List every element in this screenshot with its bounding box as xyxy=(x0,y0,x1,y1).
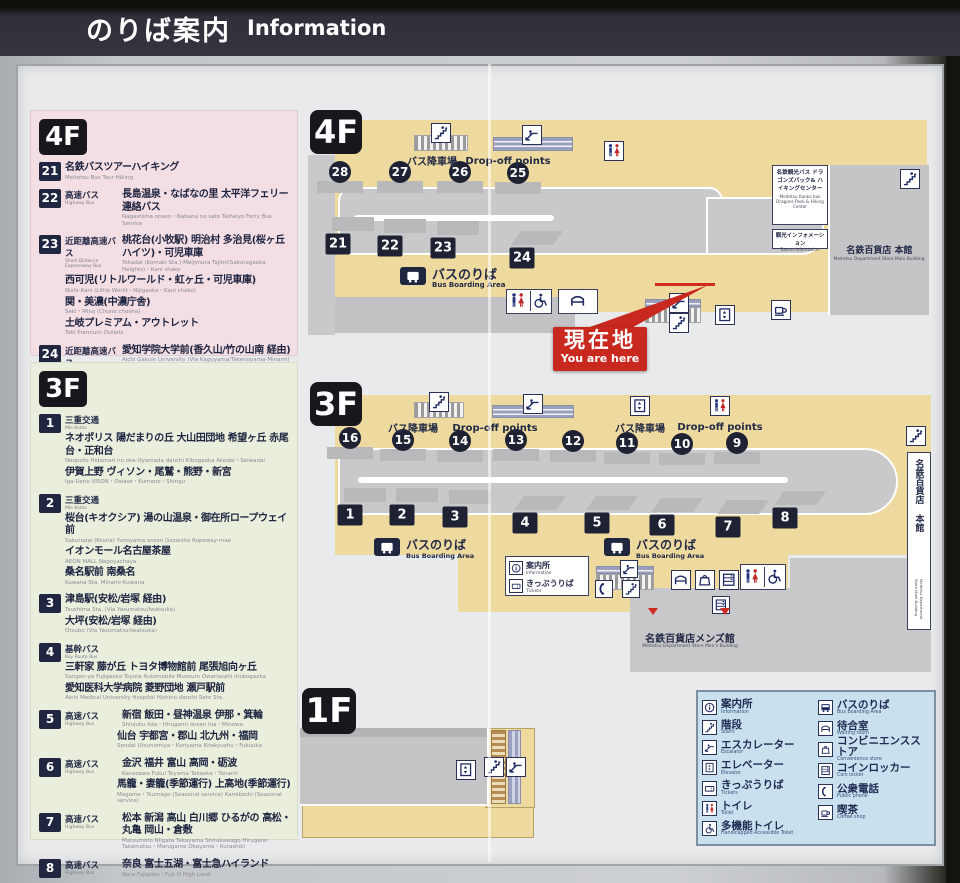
legend-label-en: Public phone xyxy=(837,794,879,799)
stairs-icon xyxy=(431,123,451,143)
bus-slot xyxy=(396,488,438,502)
boarding-bay-number: 6 xyxy=(650,515,675,536)
boarding-bay-number: 1 xyxy=(338,505,363,526)
route-number-badge: 8 xyxy=(39,859,61,878)
legend-item: 多機能トイレHandicapped Accessible Toilet xyxy=(702,819,814,839)
stairs-icon xyxy=(622,580,640,598)
info-icon xyxy=(702,700,717,715)
legend-label-ja: バスのりば xyxy=(837,700,890,711)
info-icon xyxy=(509,561,523,575)
route-destinations: 馬籠・妻籠(季節運行) 上高地(季節運行)Magome・Tsumago (Sea… xyxy=(117,779,291,805)
legend-label-ja: きっぷうりば xyxy=(721,780,784,791)
route-destinations: ネオポリス 陽だまりの丘 大山田団地 希望ヶ丘 赤尾台・正和台Neopolis … xyxy=(65,433,291,465)
tickets-icon xyxy=(509,579,523,593)
route-entry: 8高速バスHighway Bus奈良 富士五湖・富士急ハイランドNara Fuj… xyxy=(39,859,291,880)
drop-off-bay-number: 10 xyxy=(671,433,693,455)
coin-locker-icon xyxy=(719,570,739,590)
boarding-label-en: Bus Boarding Area xyxy=(406,552,474,560)
route-destinations: 桃花台(小牧駅) 明治村 多治見(桜ヶ丘ハイツ)・可児車庫Tokadai (Ko… xyxy=(122,235,291,273)
route-number-badge: 1 xyxy=(39,414,61,433)
floor4-route-panel: 4F 21名鉄バスツアーハイキングMeitetsu Bus Tour Hikin… xyxy=(30,110,298,356)
boarding-bay-number: 8 xyxy=(773,508,798,529)
tickets-label-ja: きっぷうりば xyxy=(526,578,574,589)
route-destinations: 桜台(キオクシア) 湯の山温泉・御在所ロープウェイ前Sakuradai (Kio… xyxy=(65,513,291,545)
exit-marker xyxy=(720,608,730,615)
route-type: 三重交通Mie Kotsu xyxy=(65,414,117,431)
route-destinations: 松本 新潟 高山 白川郷 ひるがの 高松・丸亀 岡山・倉敷Matsumoto N… xyxy=(122,813,291,851)
kanko-bus-center-box: 名鉄観光バス ドラゴンズパック& ハイキングセンター Meitetsu Kank… xyxy=(772,165,828,225)
route-destinations: 愛知医科大学病院 菱野団地 瀬戸駅前Aichi Medical Universi… xyxy=(65,683,225,702)
floor4-map-chip: 4F xyxy=(310,110,362,154)
route-destinations: 桑名駅前 南桑名Kuwana Sta. Minami-Kuwana xyxy=(65,567,144,586)
convenience-icon xyxy=(818,742,833,757)
legend-label-ja: エレベーター xyxy=(721,760,784,771)
route-destinations: 名鉄バスツアーハイキングMeitetsu Bus Tour Hiking xyxy=(65,162,179,181)
elevator-icon xyxy=(630,396,650,416)
route-entry: 22高速バスHighway Bus長島温泉・なばなの里 太平洋フェリー連絡バスN… xyxy=(39,189,291,229)
info-label-ja: 案内所 xyxy=(526,560,551,571)
dropoff-label2-ja: バス降車場 xyxy=(595,420,685,435)
route-number-badge: 6 xyxy=(39,758,61,777)
boarding-label2-ja: バスのりば xyxy=(636,536,696,553)
elevator-icon xyxy=(715,305,735,325)
stairs-icon xyxy=(906,426,926,446)
route-entry: 7高速バスHighway Bus松本 新潟 高山 白川郷 ひるがの 高松・丸亀 … xyxy=(39,813,291,853)
route-destinations: 伊賀上野 ヴィソン・尾鷲・熊野・新宮Iga-Ueno VISON・Owase・K… xyxy=(65,467,231,486)
toilet-icon xyxy=(508,291,528,311)
route-entry: 2三重交通Mie Kotsu桜台(キオクシア) 湯の山温泉・御在所ロープウェイ前… xyxy=(39,494,291,589)
waiting-room-icon xyxy=(671,570,691,590)
tickets-label-en: Tickets xyxy=(526,589,574,594)
toilet-icon xyxy=(604,141,624,161)
boarding-bay-number: 21 xyxy=(326,234,351,255)
route-number-badge: 4 xyxy=(39,643,61,662)
legend-item: コンビニエンスストアConvenience store xyxy=(818,739,930,760)
you-are-here-ja: 現在地 xyxy=(553,329,647,352)
boarding-bay-number: 7 xyxy=(716,517,741,538)
legend-item: バスのりばBus Boarding Area xyxy=(818,697,930,718)
route-number-badge: 22 xyxy=(39,189,61,208)
route-destinations: イオンモール名古屋茶屋AEON MALL Nagoyachaya xyxy=(65,546,171,565)
wheelchair-icon xyxy=(764,567,784,587)
frame-edge xyxy=(946,56,960,883)
boarding-bay-number: 5 xyxy=(585,513,610,534)
route-destinations: 三軒家 藤が丘 トヨタ博物館前 尾張旭向ヶ丘Sangen-ya Fujigaok… xyxy=(65,662,266,681)
stairs-icon xyxy=(484,757,504,777)
boarding-label-en: Bus Boarding Area xyxy=(432,281,505,289)
bus-icon xyxy=(374,538,400,556)
legend-label-en: Toilet xyxy=(721,811,753,816)
legend-label-en: Escalator xyxy=(721,750,795,755)
bus-slot xyxy=(449,490,491,504)
bus-icon xyxy=(400,267,426,285)
route-entry: 3津島駅(安松/岩塚 経由)Tsushima Sta. (Via Yasumat… xyxy=(39,594,291,636)
route-number-badge: 7 xyxy=(39,813,61,832)
boarding-bay-number: 24 xyxy=(510,248,535,269)
route-destinations: 奈良 富士五湖・富士急ハイランドNara Fujigoko・Fuji-Q Hig… xyxy=(122,859,269,878)
floor4-map: バス降車場 Drop-off points バスのりば Bus Boarding… xyxy=(308,105,940,377)
route-destinations: 仙台 宇都宮・郡山 北九州・福岡Sendai Utsunomiya・Koriya… xyxy=(117,731,262,750)
legend-label-en: Tickets xyxy=(721,791,784,796)
dropoff-label2-en: Drop-off points xyxy=(675,422,765,433)
you-are-here-marker: 現在地 You are here xyxy=(553,327,647,371)
escalator-icon xyxy=(620,560,638,578)
dept-store-label-ja: 名鉄百貨店 本館 xyxy=(830,243,929,256)
stairs-icon xyxy=(702,720,717,735)
legend-label-ja: 多機能トイレ xyxy=(721,821,793,832)
boarding-label2-en: Bus Boarding Area xyxy=(636,552,704,560)
dept-store-strip-ja: 名鉄百貨店 本館 xyxy=(913,459,926,579)
floor3-map: バス降車場 Drop-off points バス降車場 Drop-off poi… xyxy=(308,380,940,672)
legend-item: 喫茶Coffee shop xyxy=(818,802,930,823)
boarding-bay-number: 23 xyxy=(431,238,456,259)
legend-label-en: Coffee shop xyxy=(837,815,866,820)
route-entry: 5高速バスHighway Bus新宿 飯田・昼神温泉 伊那・箕輪Shinjuku… xyxy=(39,710,291,752)
legend-item: きっぷうりばTickets xyxy=(702,778,814,798)
kanko-label-ja: 名鉄観光バス ドラゴンズパック& ハイキングセンター xyxy=(775,168,825,192)
legend-item: エスカレーターEscalator xyxy=(702,738,814,758)
legend-label-en: Elevator xyxy=(721,771,784,776)
route-type: 高速バスHighway Bus xyxy=(65,859,117,878)
drop-off-bay-number: 9 xyxy=(726,432,748,454)
tourist-info-en: Tourist Information xyxy=(774,247,826,252)
legend-label-en: Stairs xyxy=(721,730,742,735)
sign-header: のりば案内 Information xyxy=(0,0,960,56)
bus-slot xyxy=(332,217,374,231)
dropoff-label-ja: バス降車場 xyxy=(368,420,458,435)
you-are-here-en: You are here xyxy=(553,352,647,365)
floor3-route-list: 1三重交通Mie Kotsuネオポリス 陽だまりの丘 大山田団地 希望ヶ丘 赤尾… xyxy=(39,414,291,880)
route-entry: 1三重交通Mie Kotsuネオポリス 陽だまりの丘 大山田団地 希望ヶ丘 赤尾… xyxy=(39,414,291,488)
information-tickets-box: 案内所 Information きっぷうりば Tickets xyxy=(505,556,589,596)
bus-slot xyxy=(437,221,479,235)
locker-icon xyxy=(818,763,833,778)
route-destinations: 土岐プレミアム・アウトレットToki Premium Outlets xyxy=(65,318,199,337)
boarding-bay-number: 4 xyxy=(513,513,538,534)
route-type: 近距離高速バスShort-Distance Expressway Bus xyxy=(65,235,117,273)
legend-label-ja: コンビニエンスストア xyxy=(837,736,930,757)
wheelchair-icon xyxy=(702,821,717,836)
route-type: 高速バスHighway Bus xyxy=(65,710,117,729)
legend-item: コインロッカーCoin locker xyxy=(818,760,930,781)
legend-item: 階段Stairs xyxy=(702,717,814,737)
tickets-icon xyxy=(702,781,717,796)
route-destinations: 長島温泉・なばなの里 太平洋フェリー連絡バスNagashima onsen・Na… xyxy=(122,189,291,227)
public-phone-icon xyxy=(595,580,613,598)
route-type: 高速バスHighway Bus xyxy=(65,758,117,777)
bus-slot xyxy=(344,488,386,502)
route-number-badge: 3 xyxy=(39,594,61,613)
dropoff-label-en: Drop-off points xyxy=(450,423,540,434)
lane-marking xyxy=(358,477,788,483)
legend-left-column: 案内所Information階段StairsエスカレーターEscalatorエレ… xyxy=(702,697,814,839)
legend-label-en: Information xyxy=(721,710,753,715)
boarding-bay-number: 22 xyxy=(378,236,403,257)
route-entry: 21名鉄バスツアーハイキングMeitetsu Bus Tour Hiking xyxy=(39,162,291,183)
sign-title-ja: のりば案内 xyxy=(86,9,231,48)
phone-icon xyxy=(818,784,833,799)
legend-item: エレベーターElevator xyxy=(702,758,814,778)
toilet-icon xyxy=(710,396,730,416)
legend-label-ja: 階段 xyxy=(721,720,742,731)
floor4-chip: 4F xyxy=(39,119,87,155)
route-number-badge: 2 xyxy=(39,494,61,513)
route-number-badge: 5 xyxy=(39,710,61,729)
mens-building-label-ja: 名鉄百貨店メンズ館 xyxy=(610,630,770,645)
kanko-label-en: Meitetsu Kanko bus Dragons Pack & Hiking… xyxy=(775,194,825,209)
legend-label-ja: 公衆電話 xyxy=(837,784,879,795)
boarding-bay-number: 3 xyxy=(443,507,468,528)
tourist-info-ja: 観光インフォメーション xyxy=(774,231,826,247)
mens-building-label-en: Meitetsu Department Store Men's Building xyxy=(610,644,770,649)
toilet-icon xyxy=(742,567,762,587)
legend-label-ja: トイレ xyxy=(721,801,753,812)
dept-store-label-en: Meitetsu Department Store Main Building xyxy=(832,257,926,262)
floor3-chip: 3F xyxy=(39,371,87,407)
route-number-badge: 23 xyxy=(39,235,61,254)
boarding-label-ja: バスのりば xyxy=(406,536,466,553)
legend-label-ja: 喫茶 xyxy=(837,805,866,816)
route-destinations: 新宿 飯田・昼神温泉 伊那・箕輪Shinjuku Iida・Hirugami o… xyxy=(122,710,263,729)
floor1-map: 1F xyxy=(300,672,700,872)
route-entry: 23近距離高速バスShort-Distance Expressway Bus桃花… xyxy=(39,235,291,338)
legend-label-ja: 待合室 xyxy=(837,721,869,732)
tourist-info-box: 観光インフォメーション Tourist Information xyxy=(772,229,828,249)
dept-store-strip-en: Meitetsu Department Store Main Building xyxy=(914,579,924,625)
stairs-icon xyxy=(900,169,920,189)
elevator-icon xyxy=(456,760,476,780)
waiting-icon xyxy=(818,721,833,736)
route-entry: 6高速バスHighway Bus金沢 福井 富山 高岡・砺波Kanazawa F… xyxy=(39,758,291,807)
legend-label-en: Bus Boarding Area xyxy=(837,710,890,715)
dept-store-strip: 名鉄百貨店 本館 Meitetsu Department Store Main … xyxy=(907,452,931,630)
route-type: 三重交通Mie Kotsu xyxy=(65,494,117,511)
route-type: 高速バスHighway Bus xyxy=(65,813,117,851)
bus-icon xyxy=(818,700,833,715)
info-label-en: Information xyxy=(526,571,551,576)
elevator-icon xyxy=(702,760,717,775)
legend-label-ja: エスカレーター xyxy=(721,740,795,751)
escalator-icon xyxy=(522,125,542,145)
drop-off-bay-number: 11 xyxy=(616,432,638,454)
route-destinations: 西可児(リトルワールド・虹ヶ丘・可児車庫)Nishi-Kani (Little … xyxy=(65,275,256,294)
route-destinations: 関・美濃(中濃庁舎)Seki・Mino (Chuno chosha) xyxy=(65,297,150,316)
escalator-icon xyxy=(523,394,543,414)
legend-right-column: バスのりばBus Boarding Area待合室Waiting roomコンビ… xyxy=(818,697,930,839)
drop-off-bay-number: 12 xyxy=(562,430,584,452)
floor3-map-chip: 3F xyxy=(310,382,362,426)
route-number-badge: 24 xyxy=(39,345,61,364)
boarding-bay-number: 2 xyxy=(390,505,415,526)
route-number-badge: 21 xyxy=(39,162,61,181)
bus-icon xyxy=(604,538,630,556)
legend-label-en: Coin locker xyxy=(837,773,911,778)
legend-item: トイレToilet xyxy=(702,798,814,818)
bus-slot xyxy=(384,219,426,233)
escalator-icon xyxy=(702,740,717,755)
legend-item: 公衆電話Public phone xyxy=(818,781,930,802)
legend-label-ja: 案内所 xyxy=(721,699,753,710)
exit-marker xyxy=(648,608,658,615)
route-type: 高速バスHighway Bus xyxy=(65,189,117,227)
drop-off-bay-number: 16 xyxy=(339,427,361,449)
route-destinations: 大坪(安松/岩塚 経由)Otsubo (Via Yasumatsu/Iwatsu… xyxy=(65,616,157,635)
legend-item: 案内所Information xyxy=(702,697,814,717)
legend-label-ja: コインロッカー xyxy=(837,763,911,774)
coffee-icon xyxy=(771,300,791,320)
wheelchair-icon xyxy=(530,291,550,311)
route-destinations: 津島駅(安松/岩塚 経由)Tsushima Sta. (Via Yasumats… xyxy=(65,594,175,613)
glass-glare xyxy=(488,64,491,862)
floor1-map-chip: 1F xyxy=(302,688,356,734)
legend-label-en: Handicapped Accessible Toilet xyxy=(721,831,793,836)
signboard-photo: のりば案内 Information 4F 21名鉄バスツアーハイキングMeite… xyxy=(0,0,960,883)
map-legend: 案内所Information階段StairsエスカレーターEscalatorエレ… xyxy=(696,690,936,846)
escalator-icon xyxy=(506,757,526,777)
route-type: 基幹バスKey Route Bus xyxy=(65,643,117,660)
route-destinations: 金沢 福井 富山 高岡・砺波Kanazawa Fukui Toyama Taka… xyxy=(122,758,238,777)
dropoff-label-en: Drop-off points xyxy=(463,156,553,167)
stairs-icon xyxy=(429,392,449,412)
you-are-here-arrow xyxy=(548,273,718,333)
coffee-icon xyxy=(818,805,833,820)
route-entry: 4基幹バスKey Route Bus三軒家 藤が丘 トヨタ博物館前 尾張旭向ヶ丘… xyxy=(39,643,291,704)
drop-off-bay-number: 28 xyxy=(329,161,351,183)
convenience-store-icon xyxy=(695,570,715,590)
sign-title-en: Information xyxy=(247,16,386,40)
floor3-route-panel: 3F 1三重交通Mie Kotsuネオポリス 陽だまりの丘 大山田団地 希望ヶ丘… xyxy=(30,362,298,840)
toilet-icon xyxy=(702,801,717,816)
